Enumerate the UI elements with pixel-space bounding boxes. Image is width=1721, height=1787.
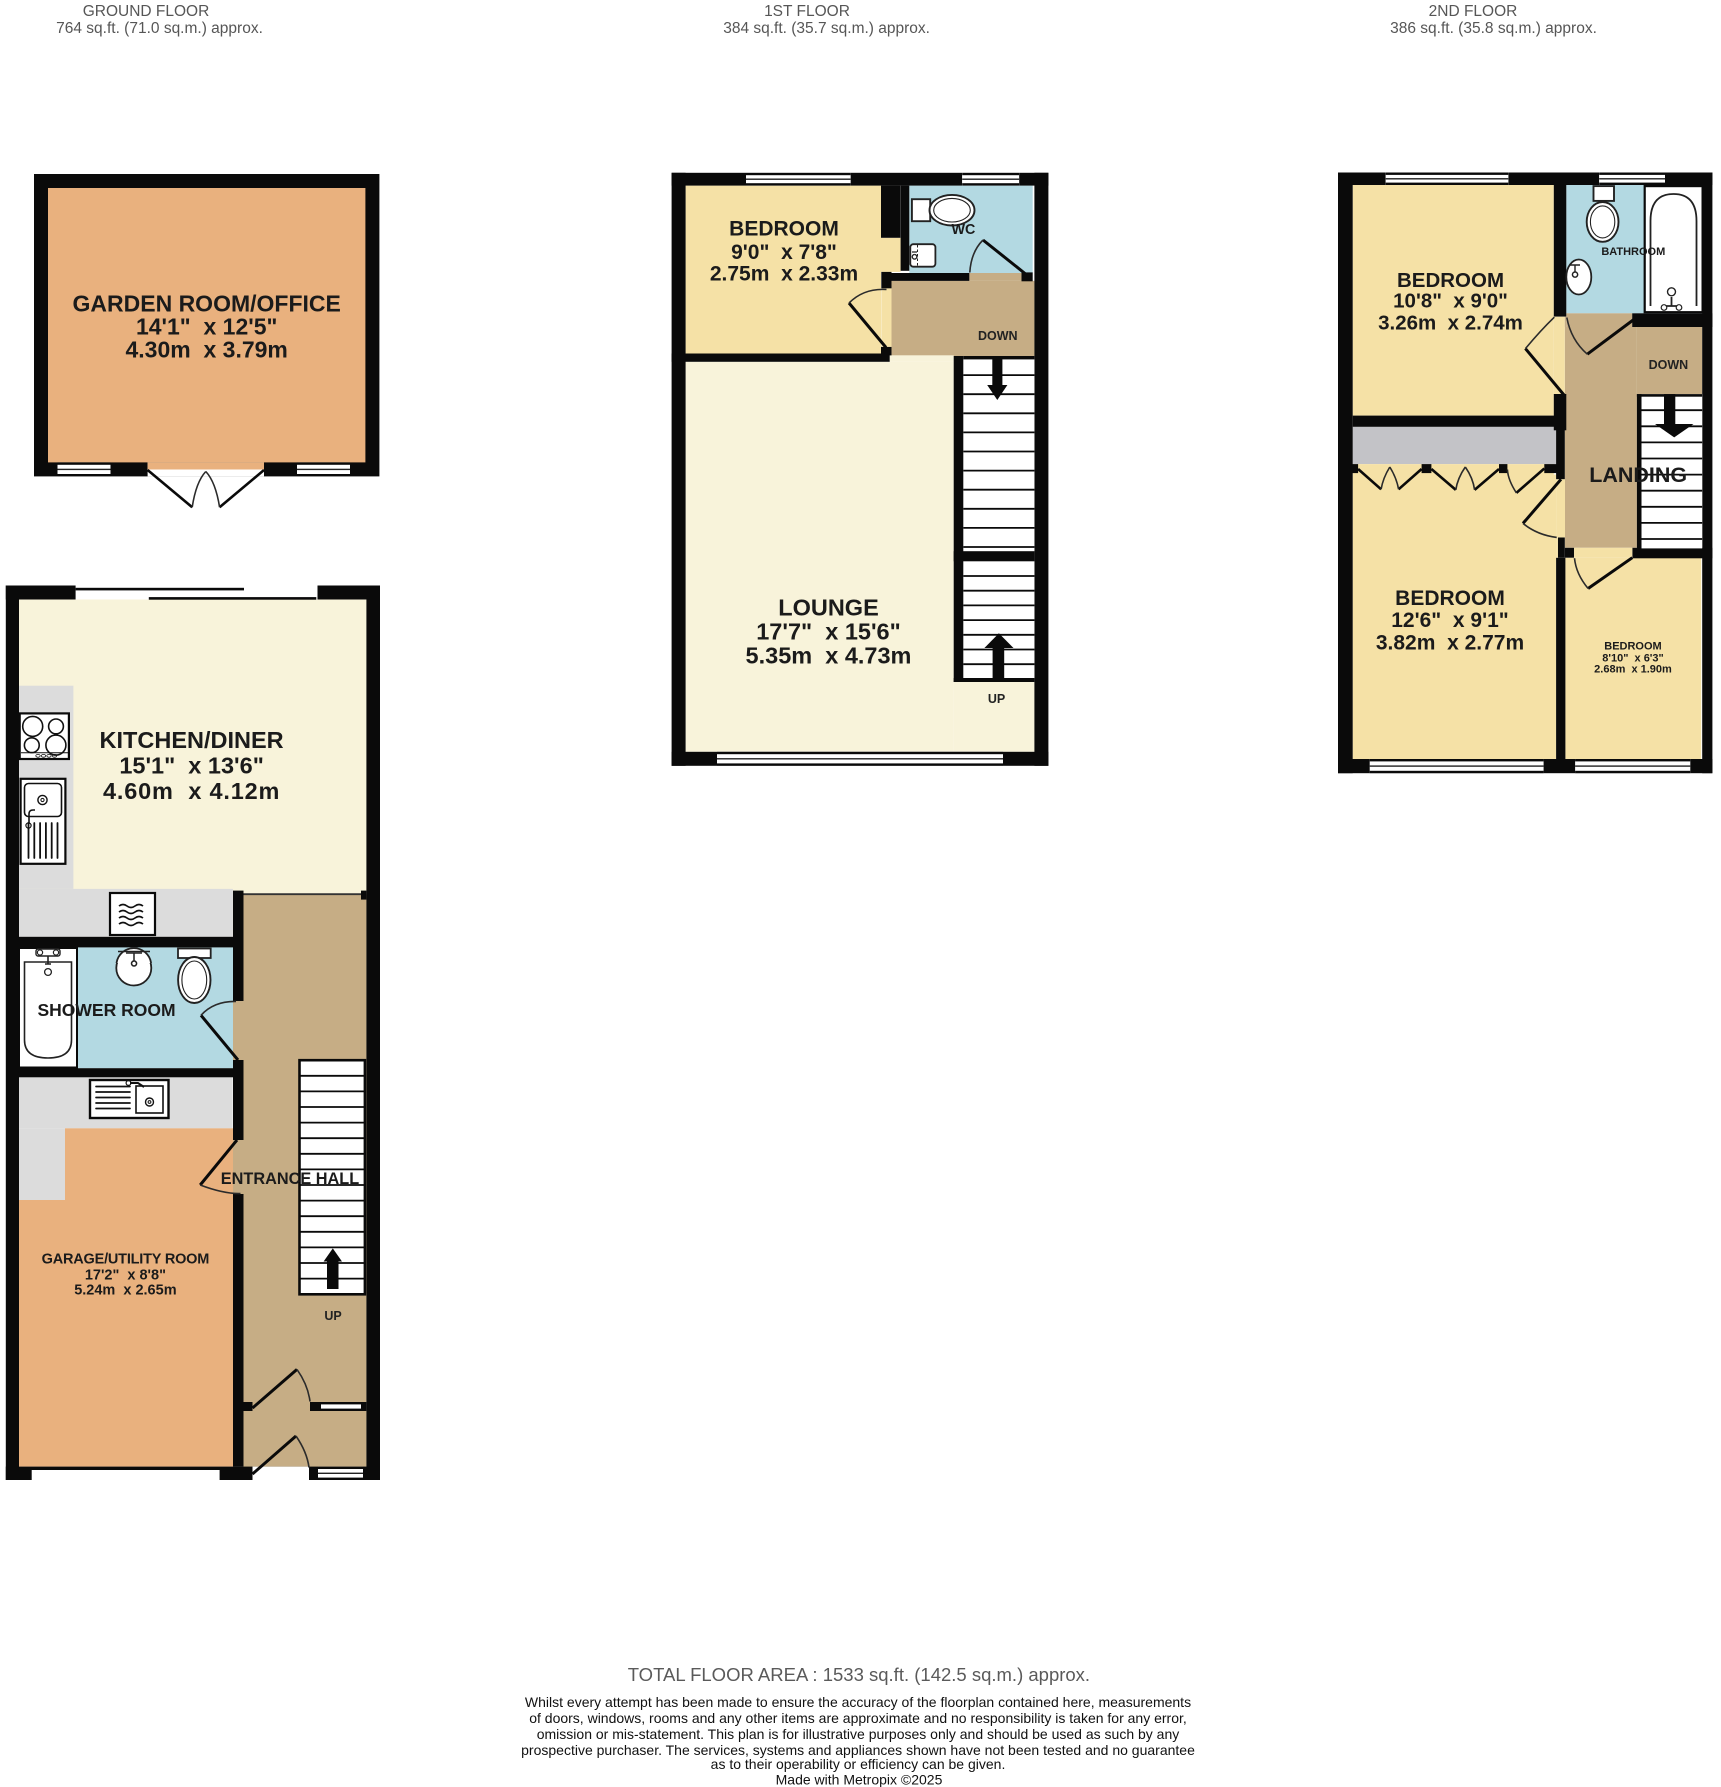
svg-text:17'7" x 15'6": 17'7" x 15'6" (756, 619, 901, 645)
svg-text:DOWN: DOWN (978, 329, 1018, 343)
svg-text:12'6" x 9'1": 12'6" x 9'1" (1391, 609, 1508, 632)
svg-text:BEDROOM: BEDROOM (1395, 587, 1505, 610)
svg-text:BEDROOM: BEDROOM (1604, 641, 1661, 653)
svg-text:9'0" x 7'8": 9'0" x 7'8" (731, 241, 837, 264)
svg-text:2.68m x 1.90m: 2.68m x 1.90m (1594, 664, 1672, 676)
svg-text:SHOWER ROOM: SHOWER ROOM (37, 1000, 175, 1020)
svg-text:5.24m x 2.65m: 5.24m x 2.65m (74, 1283, 176, 1299)
svg-text:10'8" x 9'0": 10'8" x 9'0" (1393, 290, 1508, 313)
svg-text:DOWN: DOWN (1649, 358, 1689, 372)
svg-text:UP: UP (988, 692, 1005, 706)
svg-text:2.75m x 2.33m: 2.75m x 2.33m (710, 263, 858, 286)
svg-text:as to their operability or eff: as to their operability or efficiency ca… (711, 1756, 1006, 1772)
svg-text:1ST FLOOR: 1ST FLOOR (764, 3, 850, 20)
svg-text:TOTAL FLOOR AREA : 1533 sq.ft.: TOTAL FLOOR AREA : 1533 sq.ft. (142.5 sq… (628, 1664, 1090, 1685)
svg-text:of doors, windows, rooms and a: of doors, windows, rooms and any other i… (529, 1710, 1187, 1726)
svg-text:15'1" x 13'6": 15'1" x 13'6" (119, 753, 264, 779)
svg-text:4.60m x 4.12m: 4.60m x 4.12m (103, 778, 280, 804)
svg-text:3.82m x 2.77m: 3.82m x 2.77m (1376, 632, 1524, 655)
svg-text:3.26m x 2.74m: 3.26m x 2.74m (1378, 312, 1523, 335)
svg-text:2ND FLOOR: 2ND FLOOR (1429, 3, 1518, 20)
svg-text:Made with Metropix ©2025: Made with Metropix ©2025 (776, 1772, 943, 1787)
svg-text:WC: WC (951, 222, 975, 238)
svg-text:omission or mis-statement. Thi: omission or mis-statement. This plan is … (537, 1726, 1180, 1742)
svg-text:Whilst every attempt has been: Whilst every attempt has been made to en… (525, 1694, 1191, 1710)
svg-text:GROUND FLOOR: GROUND FLOOR (83, 3, 210, 20)
svg-text:5.35m x 4.73m: 5.35m x 4.73m (746, 643, 912, 669)
svg-text:LOUNGE: LOUNGE (778, 595, 879, 621)
svg-text:386 sq.ft. (35.8 sq.m.) approx: 386 sq.ft. (35.8 sq.m.) approx. (1390, 20, 1597, 37)
svg-text:764 sq.ft. (71.0 sq.m.) approx: 764 sq.ft. (71.0 sq.m.) approx. (56, 20, 263, 37)
svg-text:ENTRANCE HALL: ENTRANCE HALL (221, 1170, 359, 1188)
svg-text:BEDROOM: BEDROOM (729, 218, 839, 241)
svg-text:GARAGE/UTILITY ROOM: GARAGE/UTILITY ROOM (42, 1252, 210, 1268)
svg-text:UP: UP (324, 1309, 341, 1323)
svg-text:384 sq.ft. (35.7 sq.m.) approx: 384 sq.ft. (35.7 sq.m.) approx. (723, 20, 930, 37)
svg-text:BATHROOM: BATHROOM (1601, 246, 1665, 258)
svg-text:LANDING: LANDING (1589, 463, 1687, 487)
svg-text:4.30m x 3.79m: 4.30m x 3.79m (125, 337, 287, 363)
svg-text:17'2" x 8'8": 17'2" x 8'8" (85, 1267, 166, 1283)
svg-text:KITCHEN/DINER: KITCHEN/DINER (100, 727, 284, 753)
